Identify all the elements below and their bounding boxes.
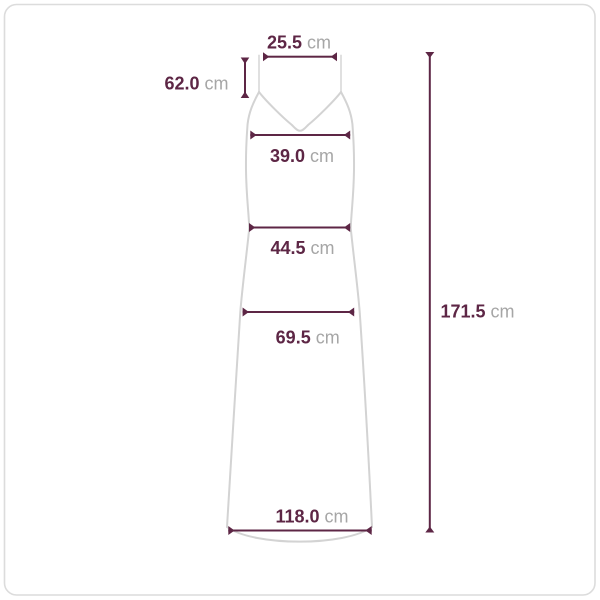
svg-text:171.5 cm: 171.5 cm <box>440 302 514 322</box>
svg-text:39.0 cm: 39.0 cm <box>270 146 334 166</box>
svg-text:44.5 cm: 44.5 cm <box>270 238 334 258</box>
svg-text:25.5 cm: 25.5 cm <box>267 33 331 53</box>
svg-text:62.0 cm: 62.0 cm <box>164 74 228 94</box>
svg-text:69.5 cm: 69.5 cm <box>276 327 340 347</box>
svg-text:118.0 cm: 118.0 cm <box>275 507 348 527</box>
